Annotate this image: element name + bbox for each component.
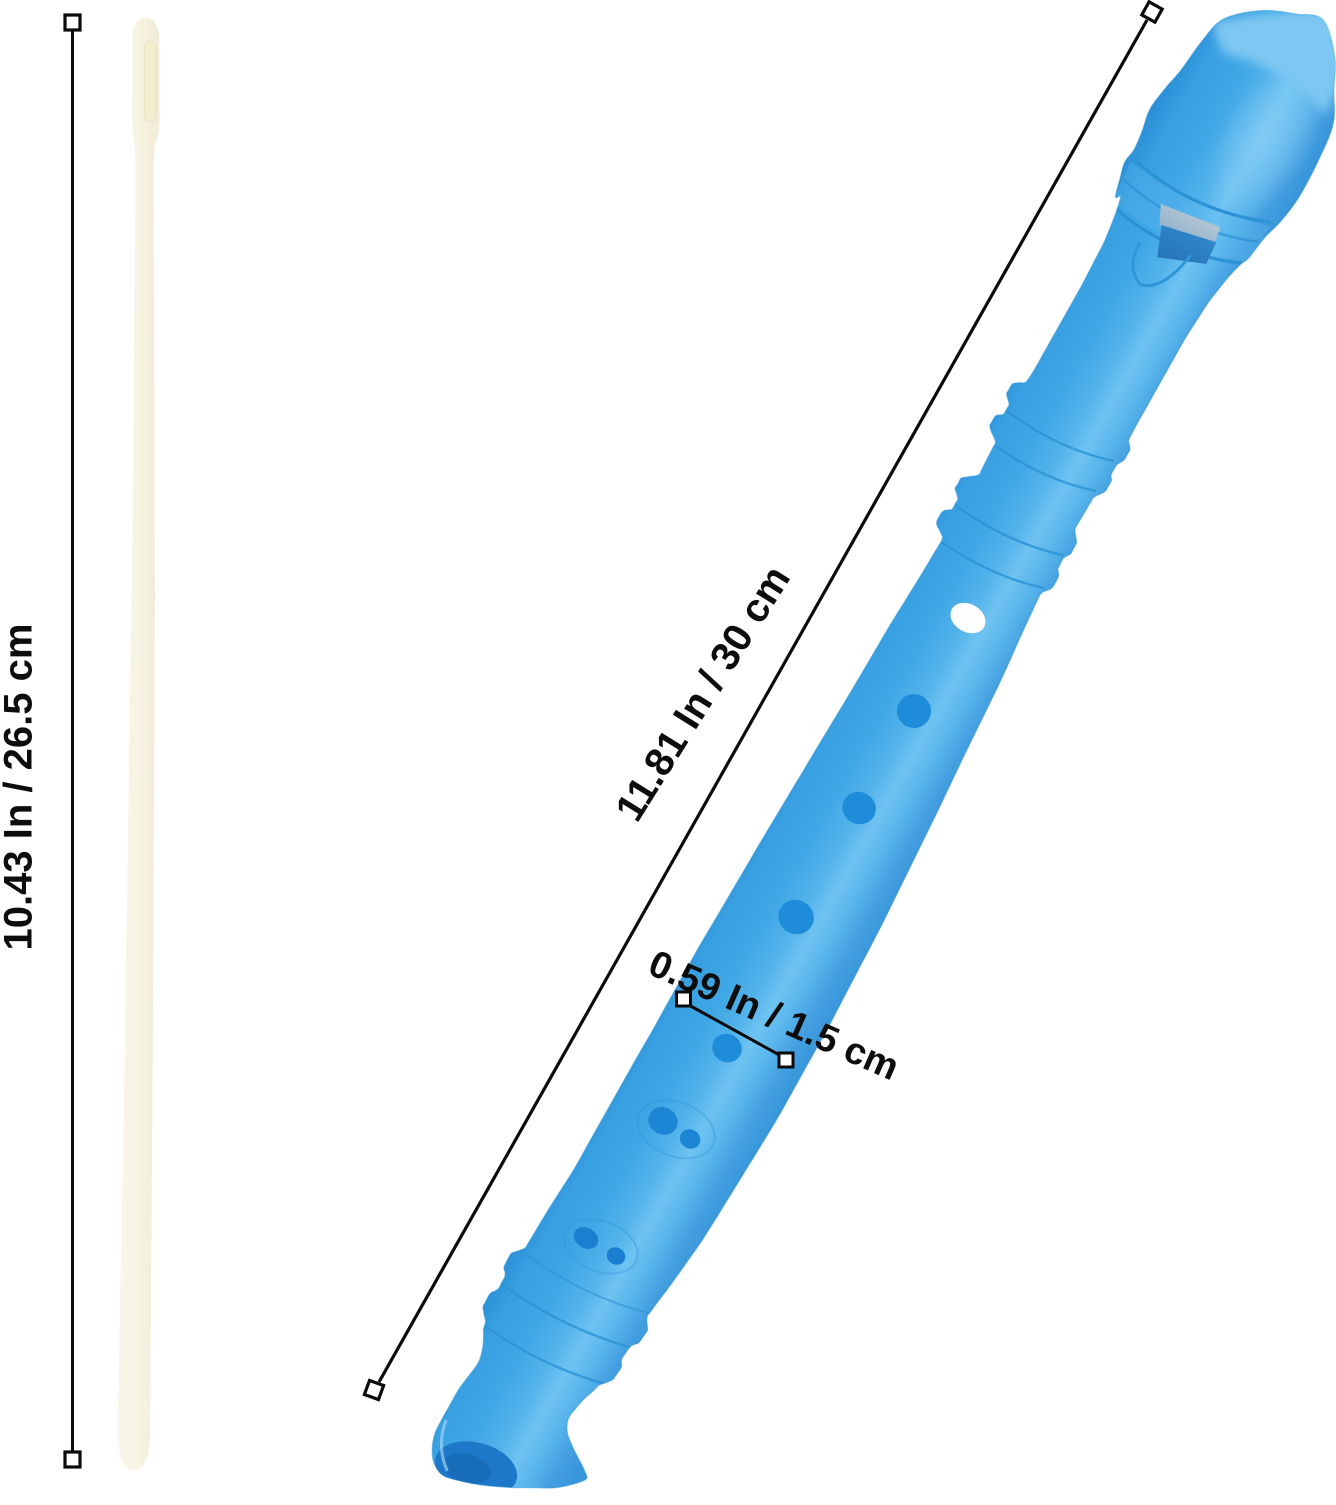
svg-text:10.43 In / 26.5 cm: 10.43 In / 26.5 cm <box>0 624 41 951</box>
